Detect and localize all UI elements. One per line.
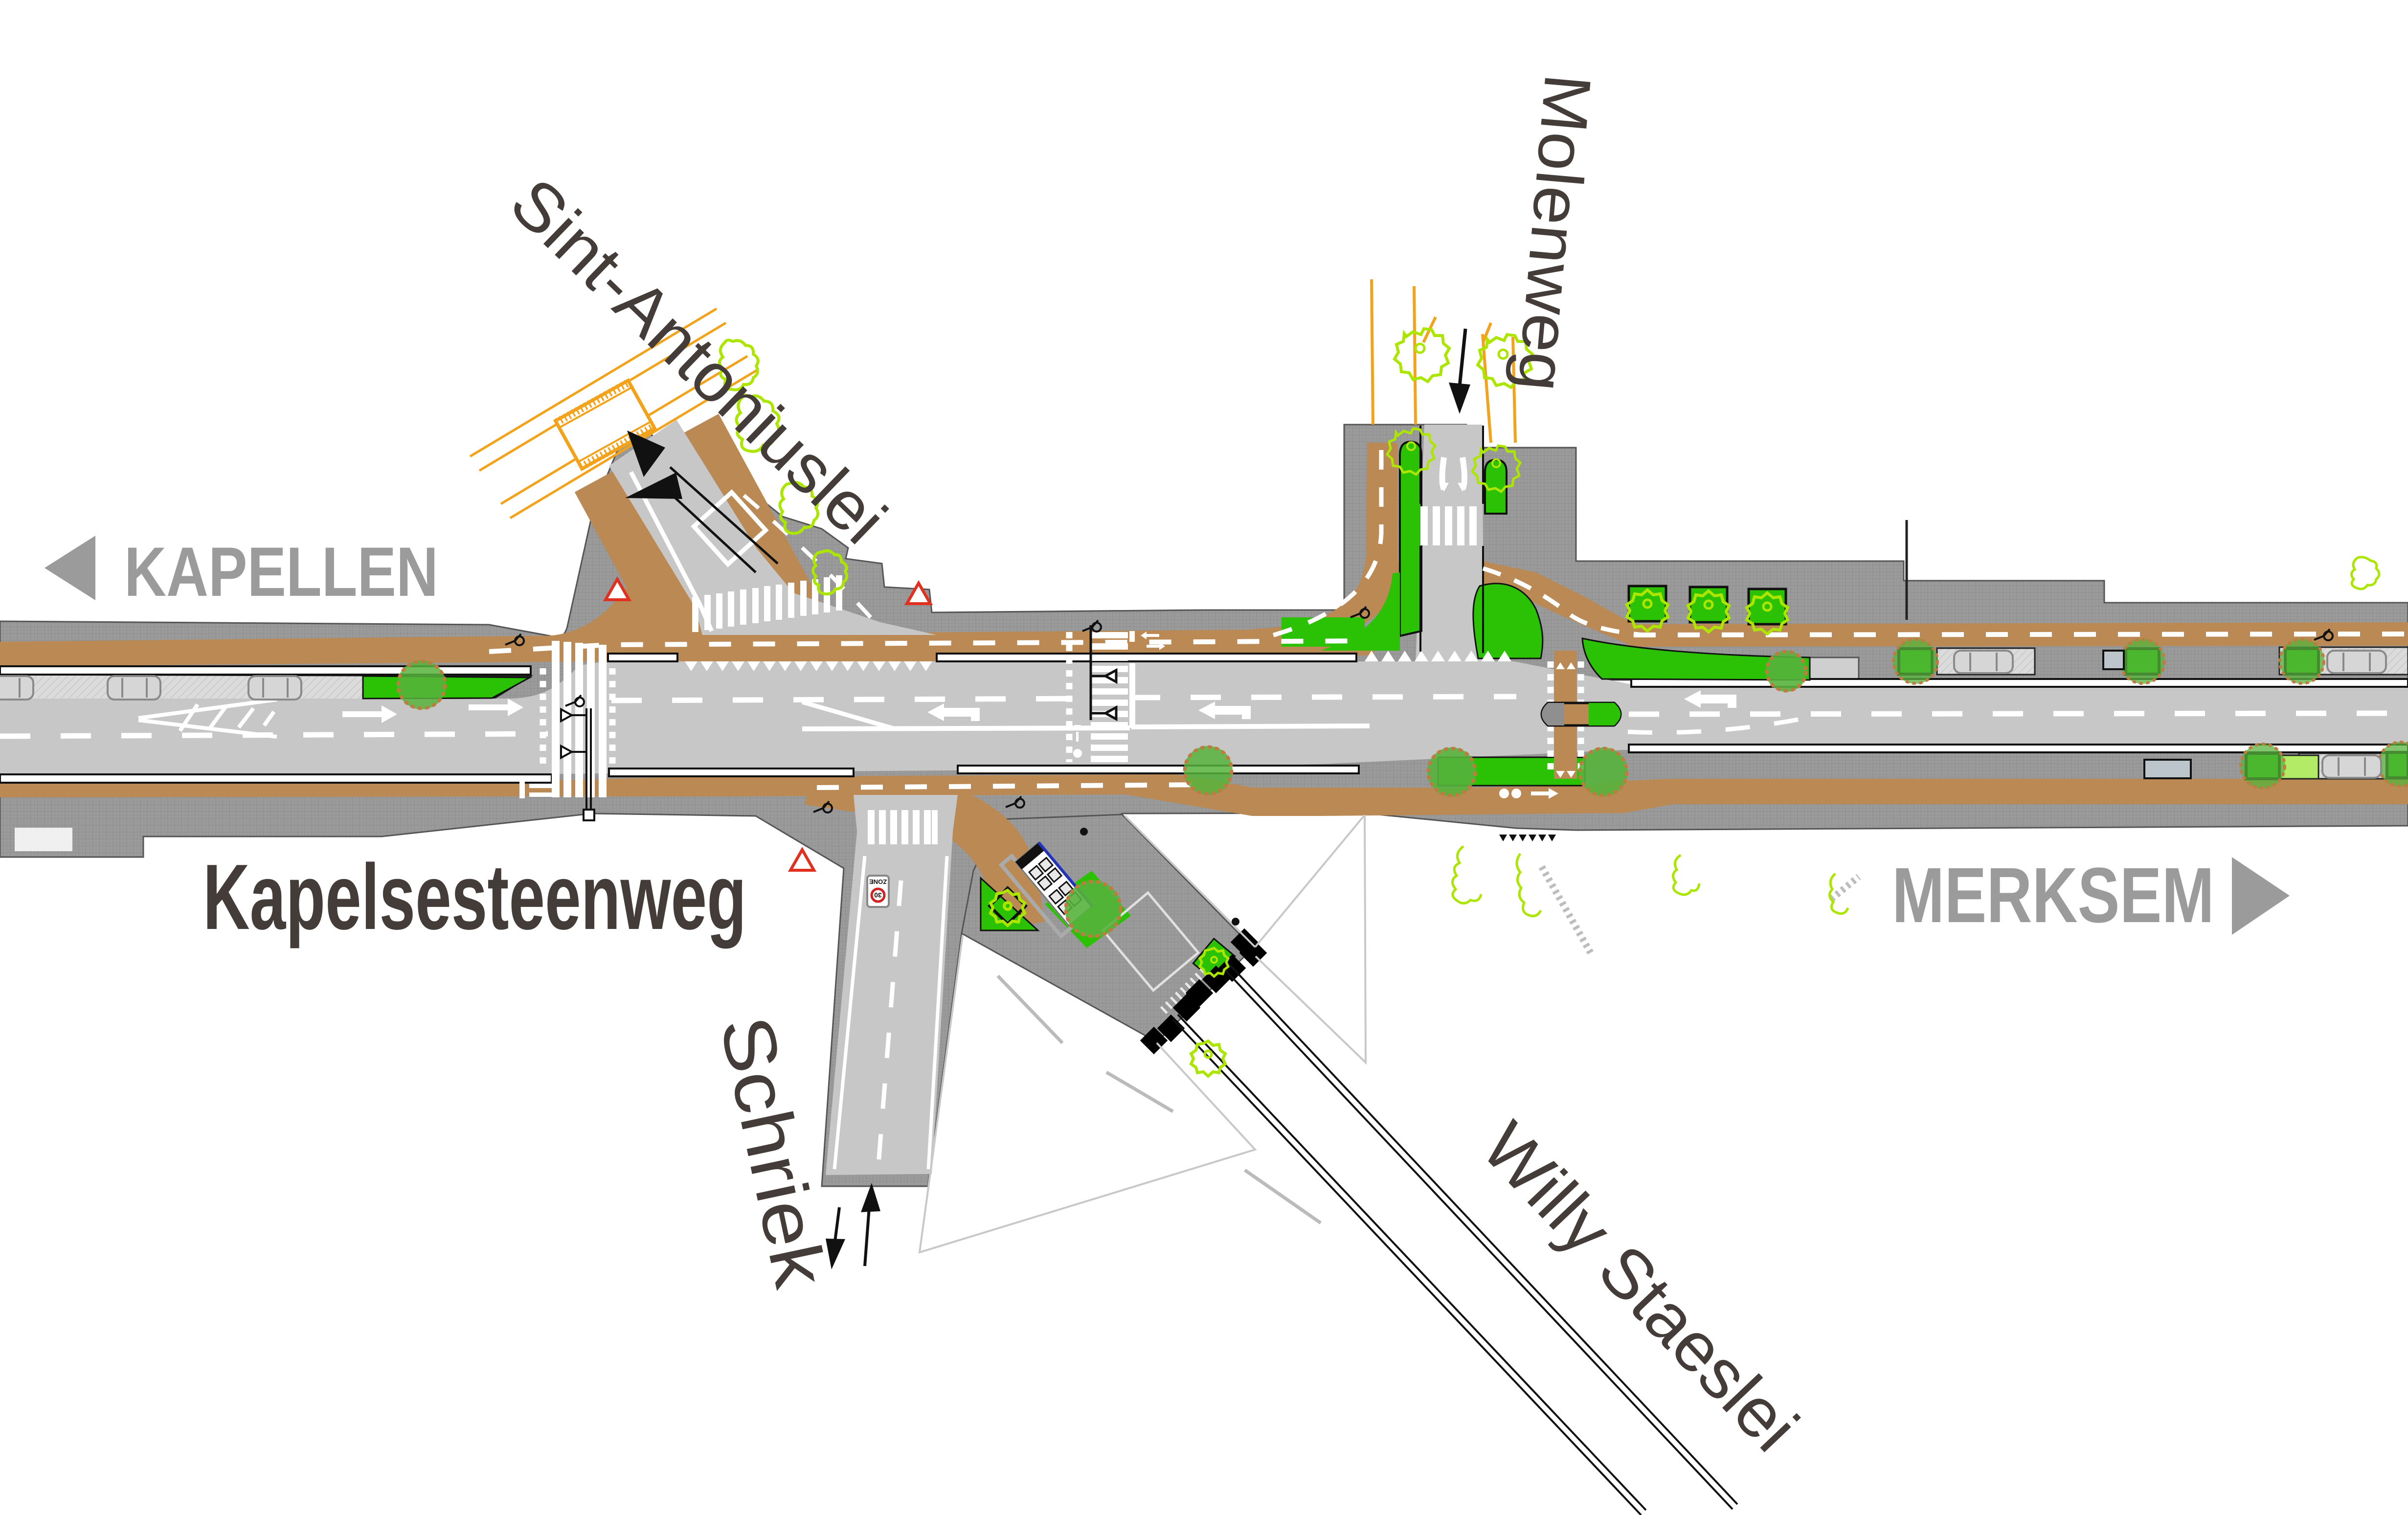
svg-text:ZONE: ZONE	[869, 878, 887, 885]
svg-text:30: 30	[874, 891, 882, 899]
svg-text:MERKSEM: MERKSEM	[1892, 851, 2214, 939]
svg-text:KAPELLEN: KAPELLEN	[124, 533, 438, 611]
svg-text:Kapelsesteenweg: Kapelsesteenweg	[203, 845, 746, 949]
